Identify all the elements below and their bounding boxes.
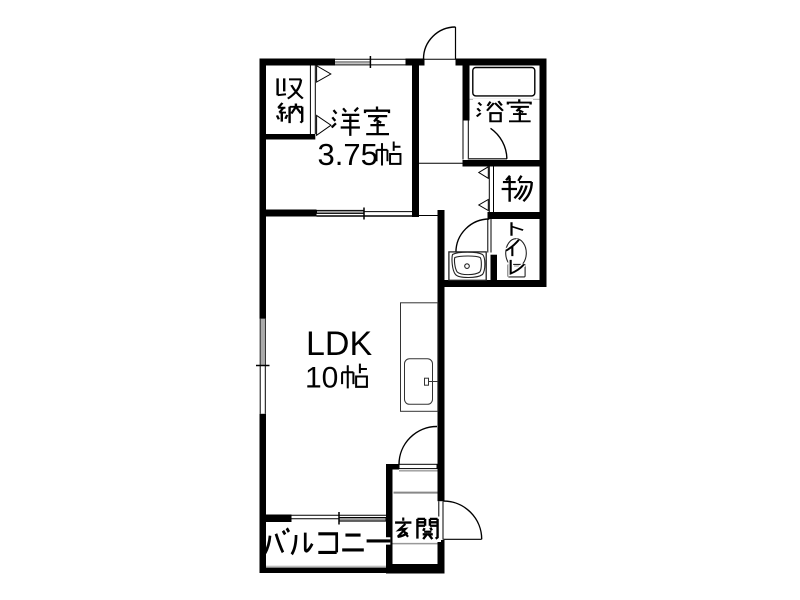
svg-text:3.75: 3.75 [318, 137, 378, 172]
svg-text:10: 10 [305, 362, 338, 395]
svg-text:LDK: LDK [306, 325, 372, 363]
